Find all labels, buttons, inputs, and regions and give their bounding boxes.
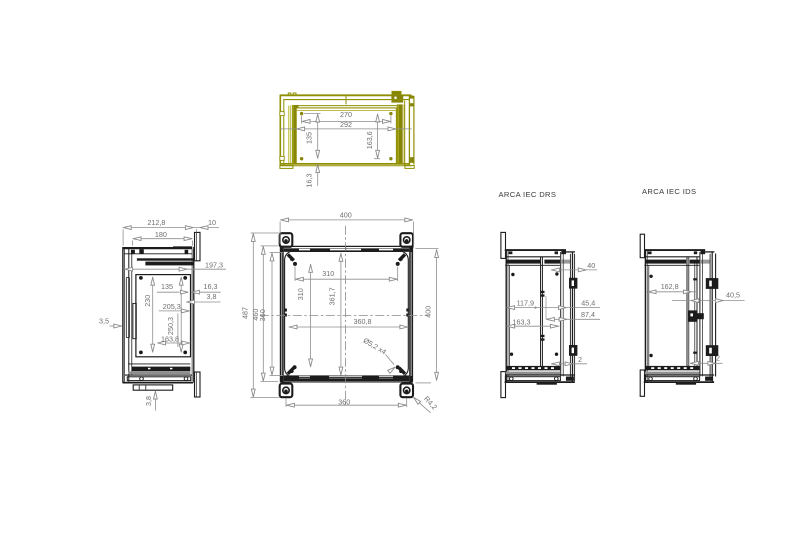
svg-text:87,4: 87,4 xyxy=(581,310,595,319)
svg-text:3,8: 3,8 xyxy=(207,292,217,301)
svg-text:361,7: 361,7 xyxy=(328,287,337,305)
svg-text:270: 270 xyxy=(340,110,352,119)
svg-text:45,4: 45,4 xyxy=(581,298,595,307)
svg-text:163,6: 163,6 xyxy=(365,131,374,149)
svg-text:360,8: 360,8 xyxy=(354,317,372,326)
svg-text:162,8: 162,8 xyxy=(661,282,679,291)
svg-text:135: 135 xyxy=(161,282,173,291)
svg-text:212,8: 212,8 xyxy=(147,218,165,227)
svg-text:163,3: 163,3 xyxy=(513,318,531,327)
svg-text:ARCA IEC DRS: ARCA IEC DRS xyxy=(499,190,557,199)
svg-text:310: 310 xyxy=(296,288,305,300)
svg-text:16,3: 16,3 xyxy=(204,282,218,291)
svg-text:250,3: 250,3 xyxy=(166,317,175,335)
svg-text:2: 2 xyxy=(716,354,720,363)
svg-text:16,3: 16,3 xyxy=(305,174,314,188)
svg-text:400: 400 xyxy=(424,306,433,318)
svg-text:230: 230 xyxy=(143,295,152,307)
svg-text:117,9: 117,9 xyxy=(517,298,534,307)
svg-text:2: 2 xyxy=(578,355,582,364)
svg-text:292: 292 xyxy=(340,120,352,129)
svg-text:135: 135 xyxy=(305,132,314,144)
svg-text:3,8: 3,8 xyxy=(144,396,153,406)
svg-text:10: 10 xyxy=(208,218,216,227)
svg-text:180: 180 xyxy=(155,230,167,239)
svg-text:ARCA IEC IDS: ARCA IEC IDS xyxy=(642,187,696,196)
svg-text:163,8: 163,8 xyxy=(161,334,179,343)
svg-text:400: 400 xyxy=(340,210,352,219)
svg-text:310: 310 xyxy=(322,269,334,278)
svg-text:40,5: 40,5 xyxy=(726,290,740,299)
svg-text:360: 360 xyxy=(338,397,350,406)
svg-text:40: 40 xyxy=(587,261,595,270)
svg-text:3,5: 3,5 xyxy=(99,316,109,325)
svg-text:197,3: 197,3 xyxy=(205,260,223,269)
svg-text:205,3: 205,3 xyxy=(163,302,181,311)
svg-text:360: 360 xyxy=(258,309,267,321)
svg-text:487: 487 xyxy=(240,307,249,319)
